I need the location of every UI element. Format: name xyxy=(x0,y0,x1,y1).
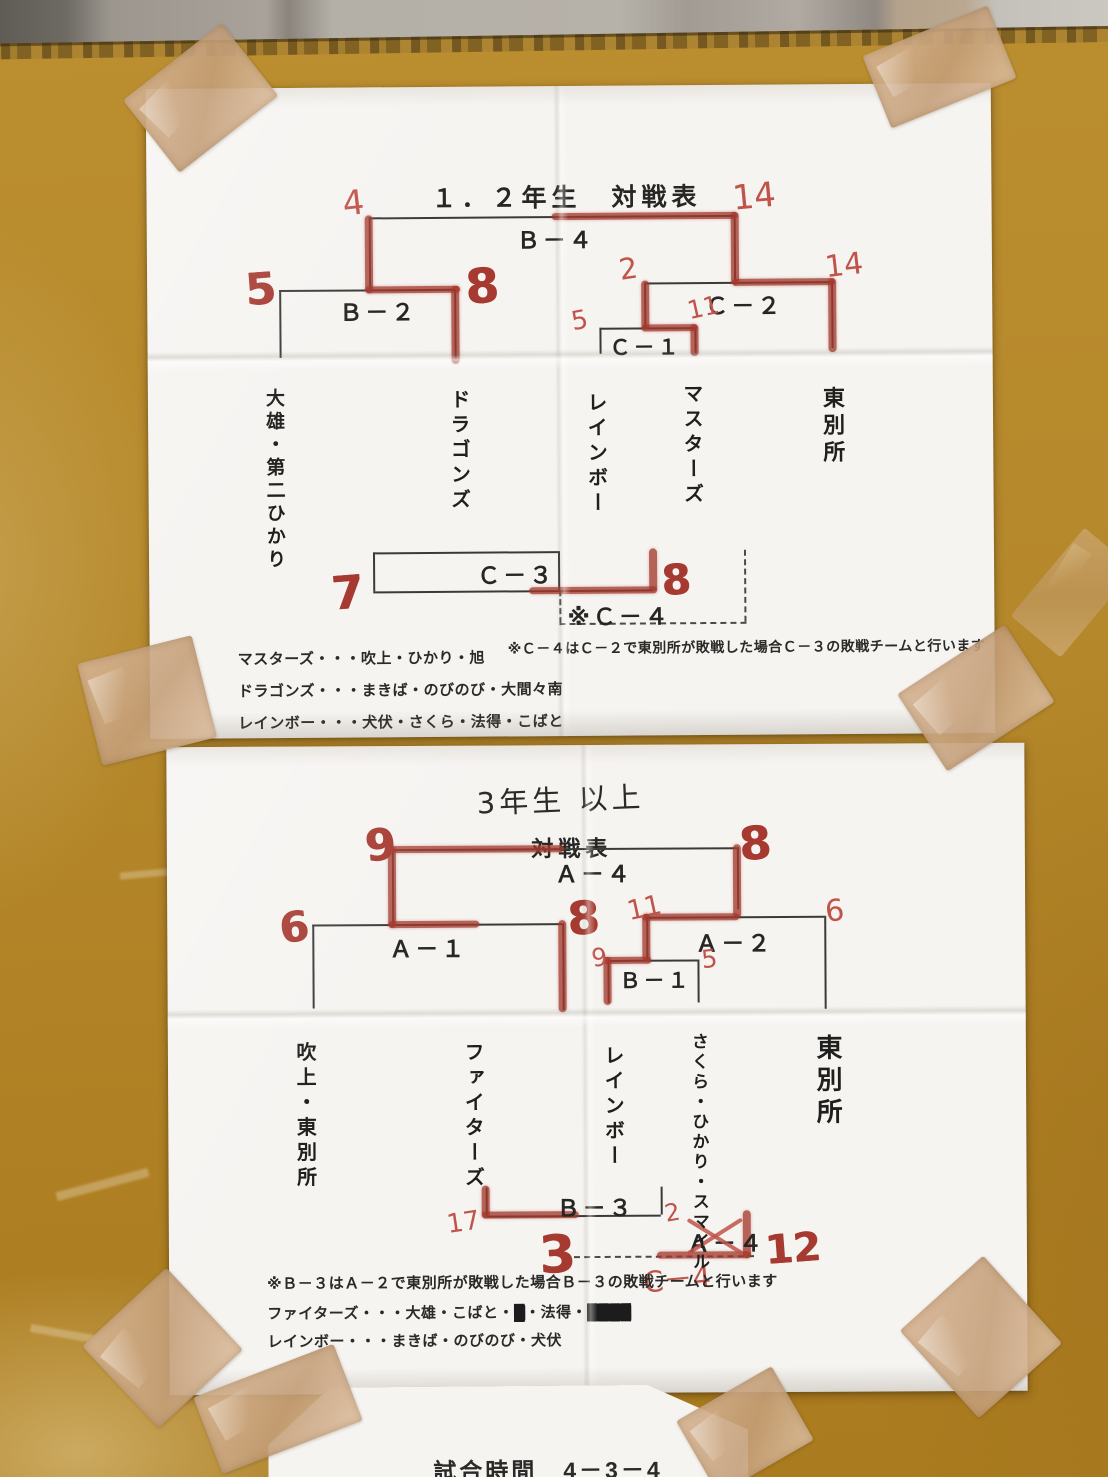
match-label-b3: Ｂ－３ xyxy=(557,1189,635,1223)
match-label-b4: Ｂ－４ xyxy=(517,221,595,256)
legend-line: ファイターズ・・・大雄・こばと・█・法得・████ xyxy=(267,1301,631,1324)
bracket-line xyxy=(373,551,558,554)
bracket-line xyxy=(279,290,281,358)
team-name: マスターズ xyxy=(677,383,707,508)
match-label-c4: ※Ｃ－４ xyxy=(567,597,671,632)
score-b1-right: 5 xyxy=(700,944,719,975)
sheet2-note: ※Ｂ－３はＡ－２で東別所が敗戦した場合Ｂ－３の敗戦チームと行います xyxy=(267,1270,778,1294)
team-name: ファイターズ xyxy=(458,1042,488,1192)
score-c2-right: 14 xyxy=(823,246,865,285)
legend-line: レインボー・・・犬伏・さくら・法得・こばと xyxy=(238,710,564,733)
marker-trace xyxy=(388,845,564,853)
team-name: 東別所 xyxy=(810,1034,848,1130)
score-c4-right: 12 xyxy=(763,1224,822,1274)
bracket-dashed-line xyxy=(744,550,747,622)
marker-trace xyxy=(388,921,479,928)
match-time-text: 試合時間 4－3－4 xyxy=(433,1451,663,1477)
score-a4-right: 8 xyxy=(737,815,773,871)
bracket-line xyxy=(697,959,699,1002)
sheet1-title: １．２年生 対戦表 xyxy=(396,177,736,215)
score-c1-left: 5 xyxy=(569,305,591,337)
score-c3-left: 7 xyxy=(329,564,365,620)
sheet2-handwritten-title: 3年生 以上 xyxy=(476,774,645,823)
match-label-c1: Ｃ－１ xyxy=(609,331,681,362)
score-a4-left: 9 xyxy=(363,819,398,873)
marker-trace xyxy=(690,324,698,356)
marker-trace xyxy=(451,286,460,364)
score-a1-left: 6 xyxy=(277,901,311,953)
sheet1-note: ※Ｃ－４はＣ－２で東別所が敗戦した場合Ｃ－３の敗戦チームと行います xyxy=(508,635,986,658)
score-b1-left: 9 xyxy=(589,942,609,973)
bracket-line xyxy=(373,552,375,591)
score-a2-left: 11 xyxy=(624,889,664,927)
marker-trace xyxy=(828,278,837,352)
score-b4-right: 14 xyxy=(731,175,778,219)
sheet-grade3plus-bracket: 3年生 以上 対戦表 Ａ－４ Ａ－１ xyxy=(166,743,1027,1395)
score-c4-left: 2 xyxy=(662,1197,682,1227)
score-a2-right: 6 xyxy=(823,893,846,930)
marker-trace xyxy=(732,278,835,286)
marker-trace xyxy=(731,212,740,285)
score-b3-left: 17 xyxy=(445,1205,482,1239)
match-label-a1: Ａ－１ xyxy=(389,930,467,964)
match-label-c3: Ｃ－３ xyxy=(477,556,555,591)
bracket-dashed-line xyxy=(559,590,561,623)
match-label-a4: Ａ－４ xyxy=(555,855,633,889)
marker-trace xyxy=(558,920,566,1012)
match-label-b2: Ｂ－２ xyxy=(339,293,417,328)
team-name: 吹上・東別所 xyxy=(290,1041,320,1191)
score-a1-right: 8 xyxy=(566,890,601,946)
team-name: さくら・ひかり・スマイル xyxy=(686,1032,712,1272)
sheet-grade12-bracket: １．２年生 対戦表 Ｂ－４ xyxy=(146,83,996,739)
score-b2-right: 8 xyxy=(463,258,500,316)
legend-line: マスターズ・・・吹上・ひかり・旭 xyxy=(238,647,485,670)
score-b4-left: 4 xyxy=(340,182,366,224)
marker-trace xyxy=(649,548,657,591)
legend-line: レインボー・・・まきば・のびのび・犬伏 xyxy=(267,1329,562,1352)
team-name: 大雄・第二ひかり xyxy=(260,388,288,572)
match-label-b1: Ｂ－１ xyxy=(619,965,691,995)
marker-trace xyxy=(365,215,374,293)
photo-of-tournament-brackets: １．２年生 対戦表 Ｂ－４ xyxy=(0,0,1108,1477)
marker-trace xyxy=(552,212,738,220)
team-name: レインボー xyxy=(598,1045,628,1170)
bracket-line xyxy=(599,328,601,354)
bracket-line xyxy=(312,924,314,1008)
team-name: レインボー xyxy=(581,392,611,517)
bracket-line xyxy=(558,551,560,590)
team-name: 東別所 xyxy=(816,386,849,467)
team-name: ドラゴンズ xyxy=(444,389,474,514)
score-c2-left: 2 xyxy=(617,250,640,286)
marker-trace xyxy=(641,280,649,329)
score-b2-left: 5 xyxy=(243,263,277,316)
score-c3-right: 8 xyxy=(660,554,692,605)
legend-line: ドラゴンズ・・・まきば・のびのび・大間々南 xyxy=(238,678,563,701)
